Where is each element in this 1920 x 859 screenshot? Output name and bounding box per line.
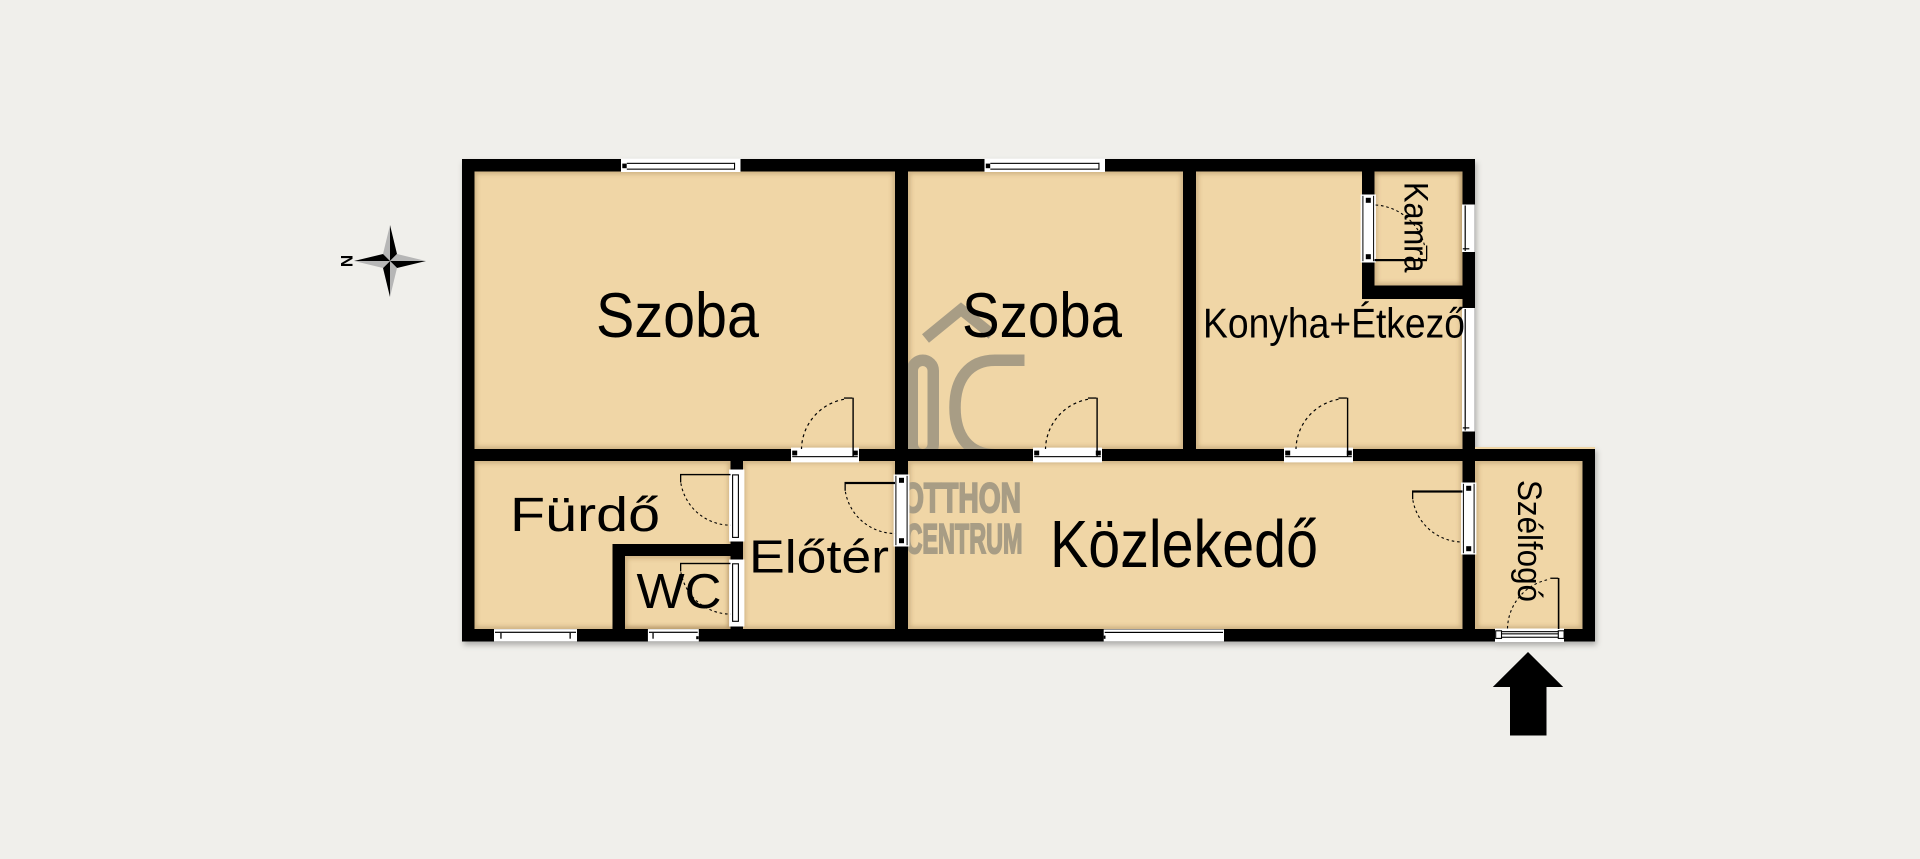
svg-text:Előtér: Előtér bbox=[749, 531, 889, 583]
svg-text:WC: WC bbox=[637, 565, 722, 619]
svg-text:Fürdő: Fürdő bbox=[510, 489, 660, 542]
svg-text:Szélfogó: Szélfogó bbox=[1510, 480, 1548, 602]
svg-text:Szoba: Szoba bbox=[962, 281, 1123, 351]
svg-text:Konyha+Étkező: Konyha+Étkező bbox=[1203, 300, 1465, 347]
svg-text:CENTRUM: CENTRUM bbox=[906, 515, 1023, 562]
svg-text:Kamra: Kamra bbox=[1397, 182, 1435, 273]
svg-text:Közlekedő: Közlekedő bbox=[1050, 507, 1318, 582]
svg-text:N: N bbox=[338, 255, 357, 267]
svg-text:OTTHON: OTTHON bbox=[902, 474, 1021, 521]
svg-text:Szoba: Szoba bbox=[596, 281, 760, 351]
